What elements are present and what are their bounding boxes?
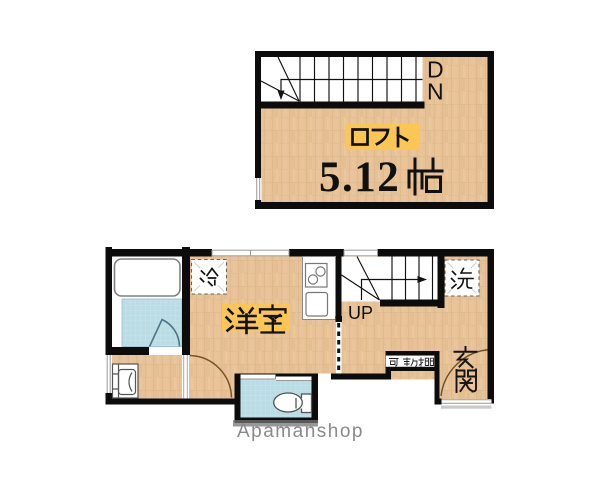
svg-text:UP: UP	[348, 303, 373, 323]
svg-text:5.12: 5.12	[319, 154, 400, 201]
svg-text:Apamanshop: Apamanshop	[237, 421, 364, 442]
svg-text:N: N	[427, 79, 444, 105]
